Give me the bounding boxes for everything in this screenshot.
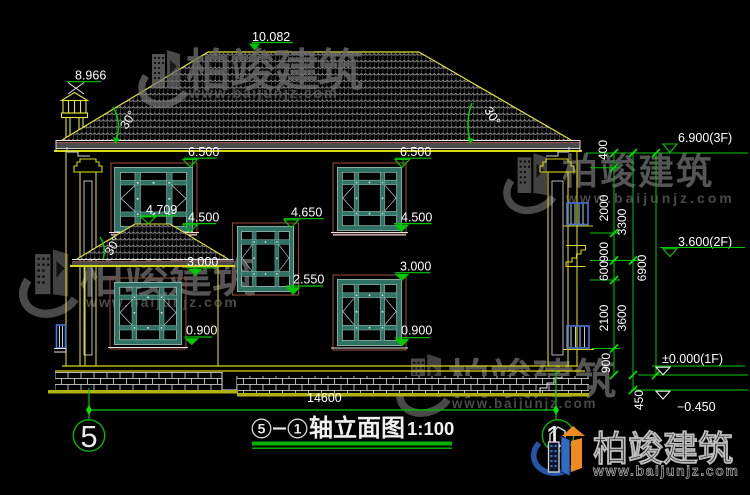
svg-text:5: 5 — [258, 421, 266, 437]
svg-text:0.900: 0.900 — [186, 324, 217, 338]
svg-text:www.baijunjz.com: www.baijunjz.com — [565, 190, 735, 206]
svg-text:900: 900 — [597, 242, 611, 262]
svg-text:3.600(2F): 3.600(2F) — [678, 235, 732, 249]
svg-text:轴立面图: 轴立面图 — [309, 414, 405, 442]
svg-text:2.550: 2.550 — [293, 273, 324, 287]
svg-text:1: 1 — [294, 421, 302, 437]
svg-text:6.900(3F): 6.900(3F) — [678, 131, 732, 145]
svg-text:900: 900 — [599, 353, 613, 373]
svg-text:0.900: 0.900 — [401, 324, 432, 338]
svg-text:6.500: 6.500 — [400, 145, 431, 159]
svg-text:14600: 14600 — [307, 391, 342, 405]
svg-text:5: 5 — [80, 419, 97, 454]
svg-text:−0.450: −0.450 — [677, 400, 716, 414]
svg-text:6900: 6900 — [635, 254, 649, 281]
svg-text:2100: 2100 — [597, 304, 611, 331]
svg-text:2000: 2000 — [597, 194, 611, 221]
svg-text:4.709: 4.709 — [146, 203, 177, 217]
svg-text:4.650: 4.650 — [291, 206, 322, 220]
svg-text:www.baijunjz.com: www.baijunjz.com — [592, 463, 739, 479]
svg-text:1:100: 1:100 — [407, 418, 454, 439]
svg-text:6.500: 6.500 — [188, 145, 219, 159]
svg-text:3600: 3600 — [615, 304, 629, 331]
svg-text:3300: 3300 — [615, 208, 629, 235]
svg-text:600: 600 — [597, 261, 611, 281]
svg-text:8.966: 8.966 — [75, 69, 106, 83]
svg-text:柏竣建筑: 柏竣建筑 — [562, 151, 714, 192]
svg-text:400: 400 — [596, 140, 610, 160]
svg-text:www.baijunjz.com: www.baijunjz.com — [188, 86, 338, 102]
svg-text:4.500: 4.500 — [401, 211, 432, 225]
svg-text:3.000: 3.000 — [187, 255, 218, 269]
svg-text:3.000: 3.000 — [400, 260, 431, 274]
svg-text:450: 450 — [632, 390, 646, 410]
svg-text:±0.000(1F): ±0.000(1F) — [662, 352, 723, 366]
svg-text:4.500: 4.500 — [188, 211, 219, 225]
svg-text:www.baijunjz.com: www.baijunjz.com — [451, 396, 597, 411]
